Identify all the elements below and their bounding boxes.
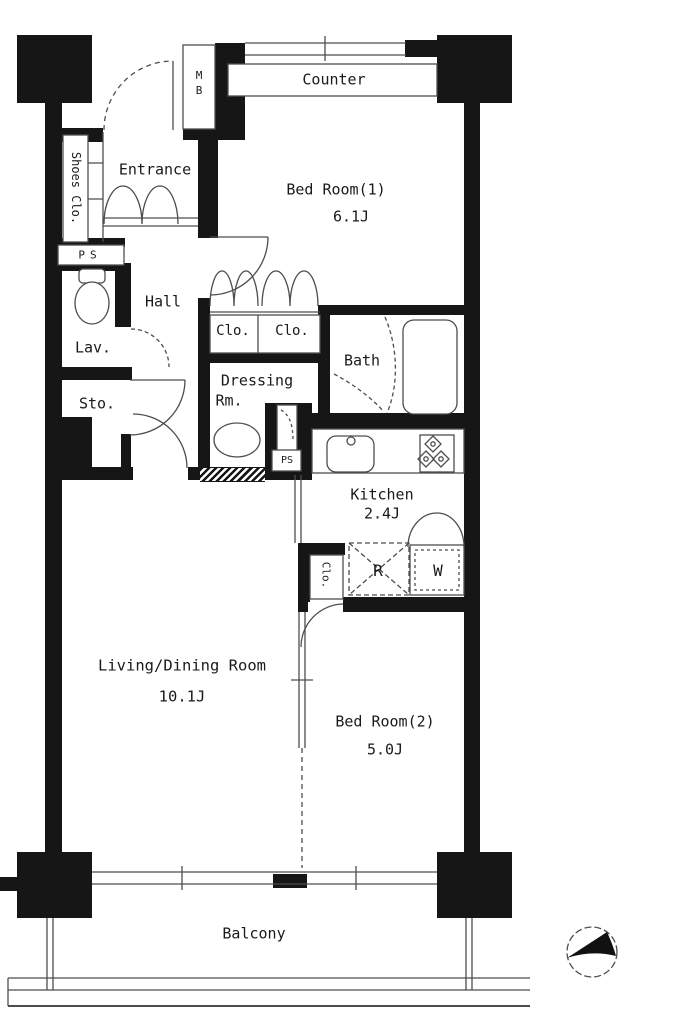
front-door [104, 61, 173, 130]
label-dressing-line1: Dressing [221, 374, 293, 389]
label-bedroom2-size: 5.0J [367, 743, 403, 758]
stove-icon [418, 435, 454, 472]
label-kitchen-closet: Clo. [321, 562, 332, 589]
north-compass-icon [567, 927, 617, 977]
label-living-size: 10.1J [159, 689, 206, 705]
label-counter: Counter [302, 73, 365, 88]
label-closet-b: Clo. [275, 324, 309, 338]
label-kitchen-name: Kitchen [350, 488, 413, 503]
label-pipe-space-upper: PS [78, 250, 101, 261]
plan-linework [0, 0, 682, 1024]
label-shoes-closet: Shoes Clo. [70, 152, 82, 224]
label-bedroom1-name: Bed Room(1) [286, 183, 385, 198]
dressing-door [277, 405, 297, 452]
storage-door [130, 380, 185, 435]
closet-bifold-doors [210, 271, 318, 306]
label-bedroom1-size: 6.1J [333, 210, 369, 225]
floor-plan: Counter MB Shoes Clo. PS Entrance Bed Ro… [0, 0, 682, 1024]
label-washer: W [433, 563, 443, 579]
hall-living-door [133, 414, 187, 468]
shoes-closet-shelves [88, 132, 103, 242]
window-top [245, 36, 406, 61]
label-refrigerator: R [373, 563, 383, 579]
label-entrance: Entrance [119, 163, 191, 178]
bedroom2-door [301, 604, 343, 647]
label-living-name: Living/Dining Room [98, 658, 266, 674]
label-storage: Sto. [79, 397, 115, 412]
label-pipe-space-lower: PS [281, 456, 293, 466]
label-bath: Bath [344, 354, 380, 369]
kitchen-open-edge [295, 475, 301, 543]
bathtub-icon [403, 320, 457, 414]
label-lavatory: Lav. [75, 341, 111, 356]
label-meter-box: MB [194, 69, 205, 99]
lavatory-door [131, 329, 169, 367]
label-hall: Hall [145, 295, 181, 310]
washbasin-icon [214, 423, 260, 457]
label-bedroom2-name: Bed Room(2) [335, 715, 434, 730]
label-kitchen-size: 2.4J [364, 507, 400, 522]
entrance-step [103, 218, 198, 226]
label-closet-a: Clo. [216, 324, 250, 338]
label-dressing-line2: Rm. [215, 394, 242, 409]
bedroom1-door [210, 237, 268, 295]
washer-closet-doors [408, 513, 464, 547]
toilet-icon [75, 269, 109, 324]
partition-living-bedroom2 [291, 612, 313, 868]
window-bottom [92, 866, 437, 890]
faucet-icon [347, 437, 355, 445]
label-balcony: Balcony [222, 927, 285, 942]
